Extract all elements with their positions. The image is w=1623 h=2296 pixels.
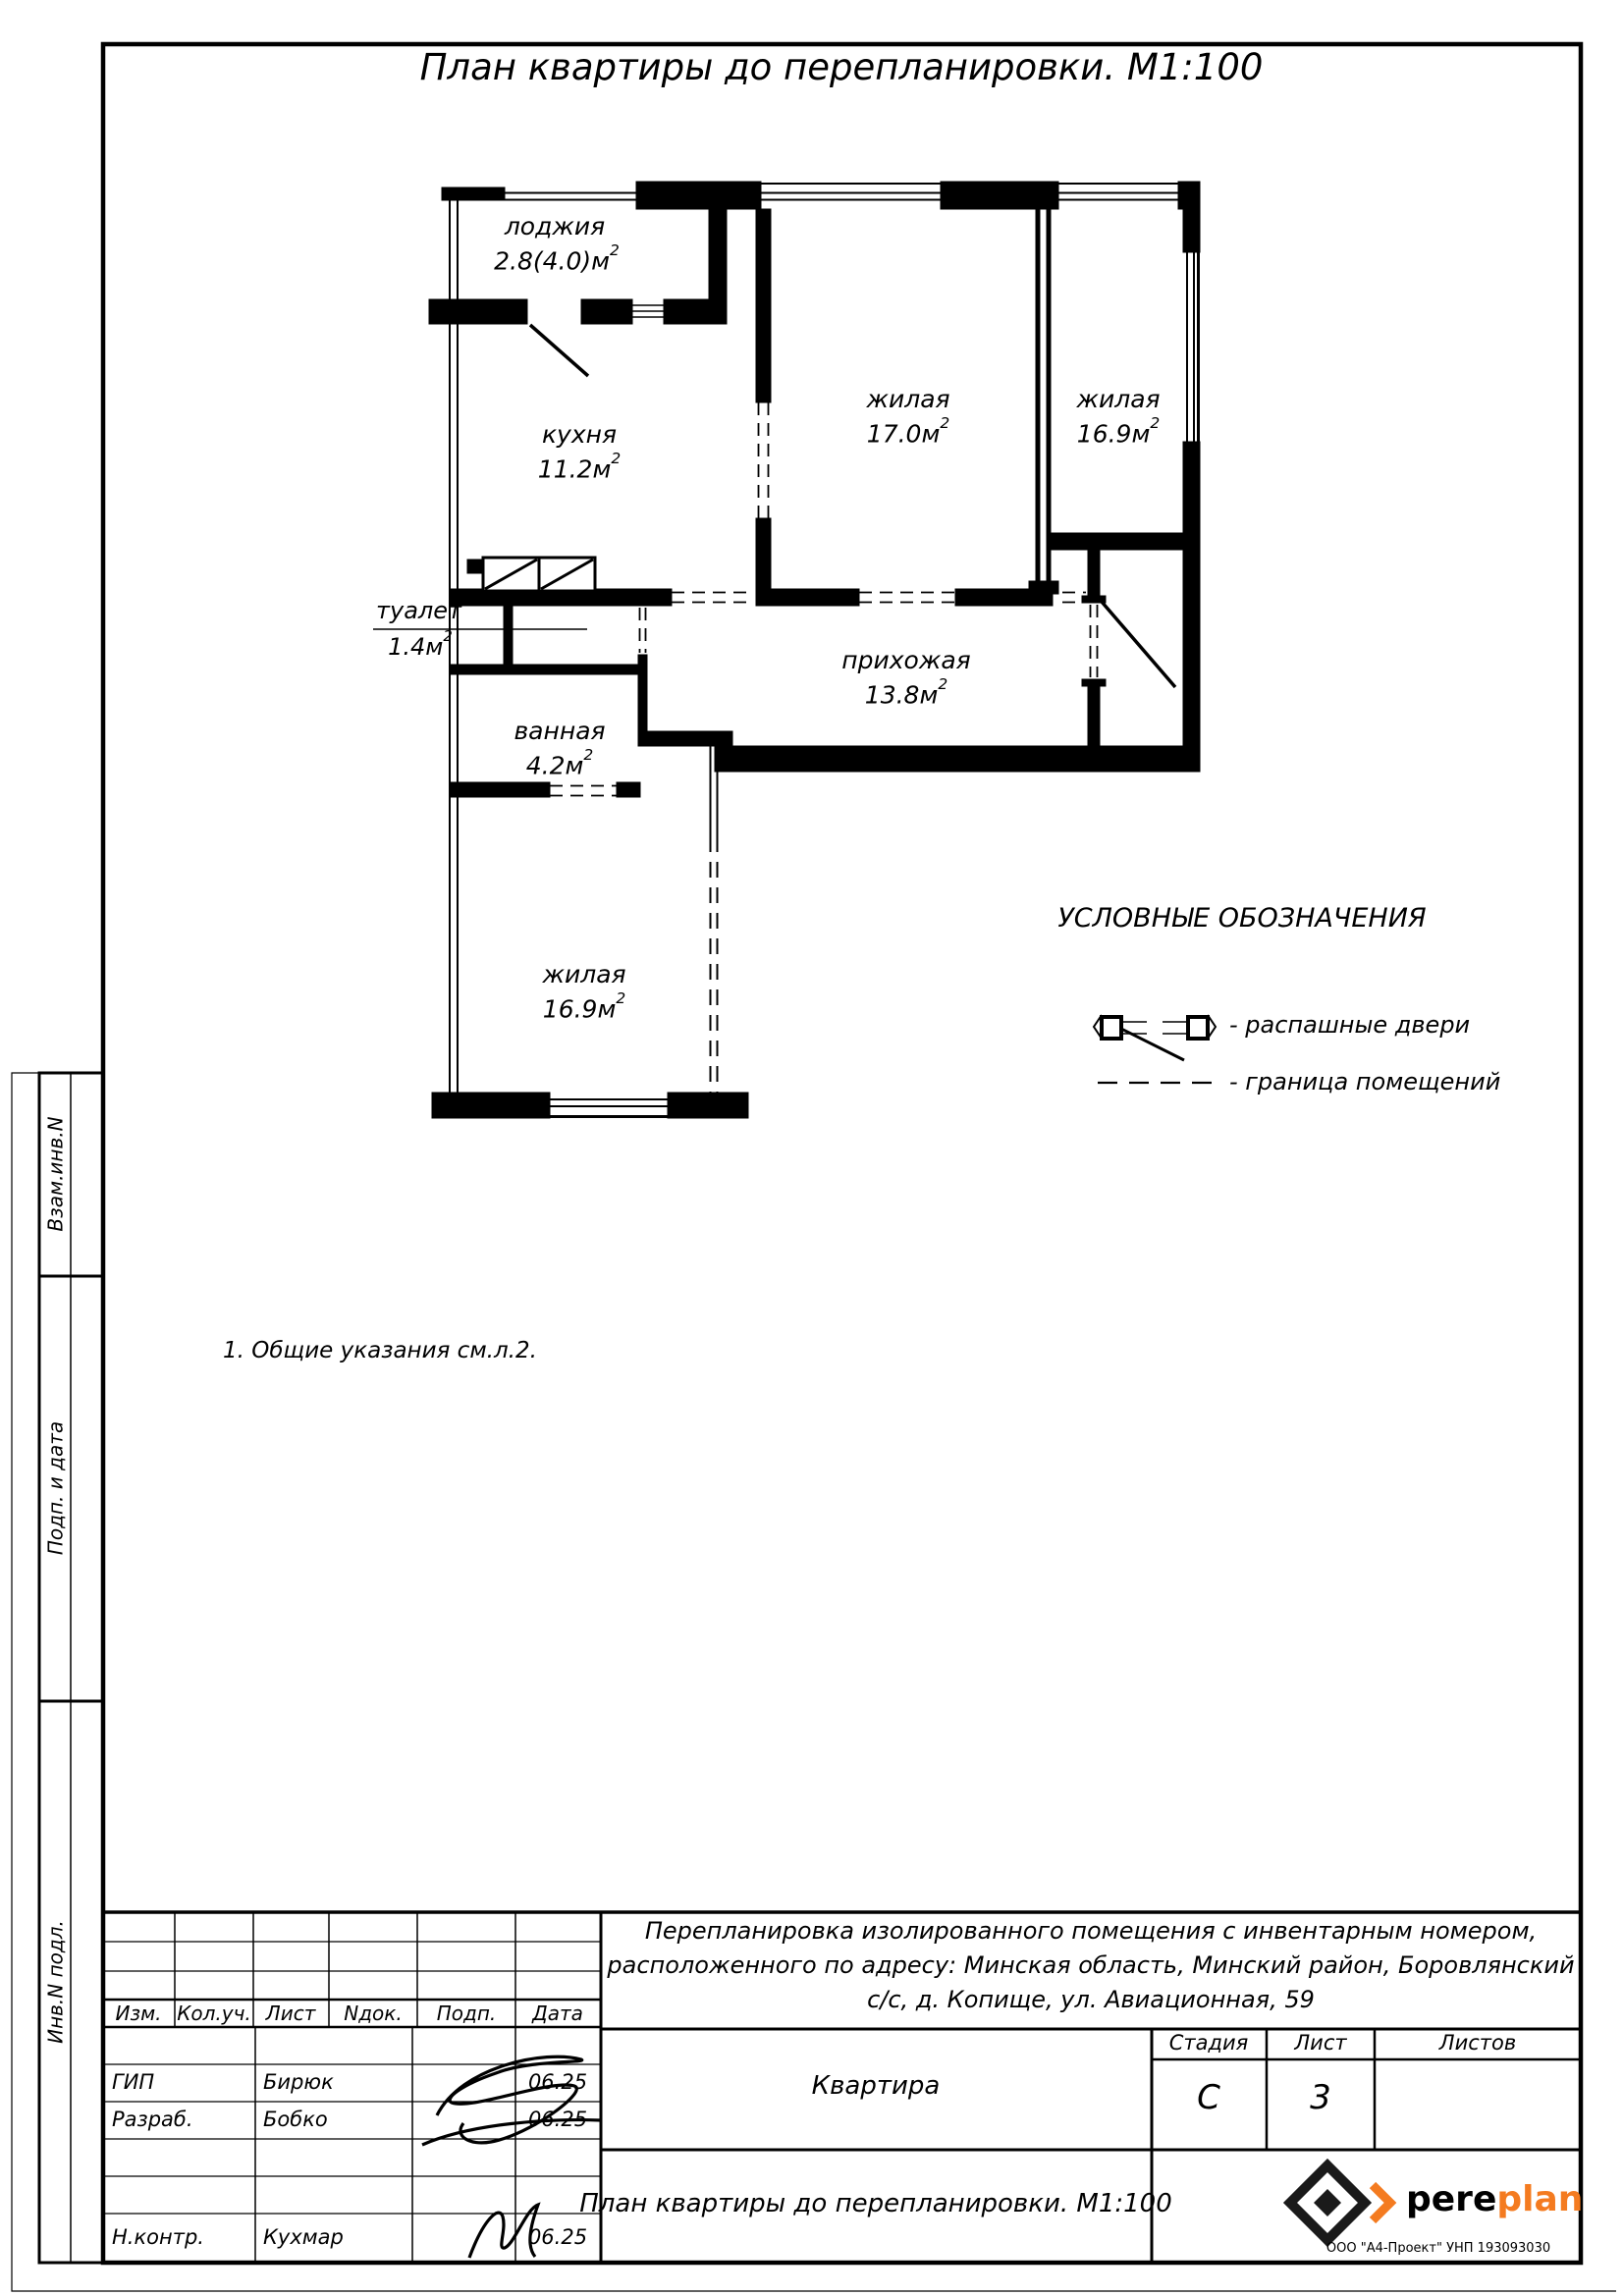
- role-gip-name: Бирюк: [263, 2071, 334, 2093]
- room-label-living2: жилая: [1076, 387, 1160, 412]
- legend-door-label: - распашные двери: [1229, 1013, 1470, 1038]
- room-area-wc: 1.4м2: [388, 634, 453, 660]
- role-nkontr: Н.контр.: [112, 2226, 204, 2248]
- room-area-bath: 4.2м2: [526, 752, 594, 779]
- object-name: Квартира: [812, 2073, 941, 2100]
- room-label-living3: жилая: [542, 962, 625, 988]
- room-label-bath: ванная: [514, 719, 605, 744]
- legend-door-jamb-right: [1188, 1017, 1208, 1039]
- rev-header-data: Дата: [532, 2003, 583, 2024]
- sidebar-label-vzam: Взам.инв.N: [46, 1116, 67, 1231]
- rev-header-podp: Подп.: [437, 2003, 497, 2024]
- room-label-hall: прихожая: [841, 648, 970, 673]
- role-razrab-name: Бобко: [263, 2109, 328, 2130]
- project-desc-line1: Перепланировка изолированного помещения …: [645, 1919, 1537, 1944]
- room-area-living3: 16.9м2: [543, 995, 625, 1023]
- page-title: План квартиры до перепланировки. М1:100: [420, 49, 1264, 87]
- rev-header-ndok: Nдок.: [344, 2003, 402, 2024]
- room-area-hall: 13.8м2: [865, 681, 947, 709]
- room-label-wc: туалет: [376, 599, 461, 623]
- room-area-living1: 17.0м2: [867, 420, 949, 448]
- room-area-living2: 16.9м2: [1077, 420, 1160, 448]
- sheets-header: Листов: [1439, 2032, 1516, 2054]
- project-desc-line3: с/с, д. Копище, ул. Авиационная, 59: [867, 1988, 1315, 2012]
- general-note: 1. Общие указания см.л.2.: [223, 1339, 537, 1362]
- drawing-sheet: План квартиры до перепланировки. М1:100 …: [0, 0, 1623, 2296]
- floor-plan: [373, 182, 1200, 1118]
- logo-subtext: ООО "А4-Проект" УНП 193093030: [1326, 2242, 1550, 2256]
- sheet-value: 3: [1310, 2081, 1331, 2116]
- room-area-kitchen: 11.2м2: [538, 455, 621, 483]
- door-swing-entrance: [1102, 602, 1175, 687]
- sidebar-boxes: [39, 1073, 103, 2263]
- role-razrab: Разраб.: [112, 2109, 193, 2130]
- room-label-living1: жилая: [866, 387, 949, 412]
- drawing-title: План квартиры до перепланировки. М1:100: [579, 2191, 1171, 2217]
- role-nkontr-name: Кухмар: [263, 2226, 344, 2248]
- role-gip-date: 06.25: [528, 2071, 587, 2093]
- pereplan-logo-text: pereplan: [1406, 2181, 1583, 2218]
- pereplan-logo-mark: [1290, 2165, 1390, 2240]
- project-desc-line2: расположенного по адресу: Минская област…: [607, 1953, 1574, 1978]
- role-razrab-date: 06.25: [528, 2109, 587, 2130]
- sidebar-label-inv: Инв.N подл.: [46, 1920, 67, 2044]
- room-label-kitchen: кухня: [542, 422, 617, 448]
- legend-door-jamb-left: [1102, 1017, 1121, 1039]
- stage-header: Стадия: [1169, 2032, 1249, 2054]
- rev-header-izm: Изм.: [115, 2003, 161, 2024]
- legend-symbols: [1094, 1015, 1217, 1083]
- sheet-header: Лист: [1294, 2032, 1346, 2054]
- room-area-loggia: 2.8(4.0)м2: [494, 247, 620, 275]
- stage-value: С: [1197, 2081, 1220, 2116]
- role-nkontr-date: 06.25: [528, 2226, 587, 2248]
- rev-header-koluch: Кол.уч.: [177, 2003, 251, 2024]
- room-label-loggia: лоджия: [505, 214, 605, 240]
- logo-chevron-icon: [1373, 2185, 1390, 2220]
- sidebar-label-podp: Подп. и дата: [46, 1421, 67, 1555]
- rev-header-list: Лист: [266, 2003, 316, 2024]
- door-swing-loggia: [530, 325, 588, 376]
- legend-boundary-label: - граница помещений: [1229, 1070, 1500, 1095]
- role-gip: ГИП: [112, 2071, 154, 2093]
- legend-title: УСЛОВНЫЕ ОБОЗНАЧЕНИЯ: [1057, 905, 1426, 933]
